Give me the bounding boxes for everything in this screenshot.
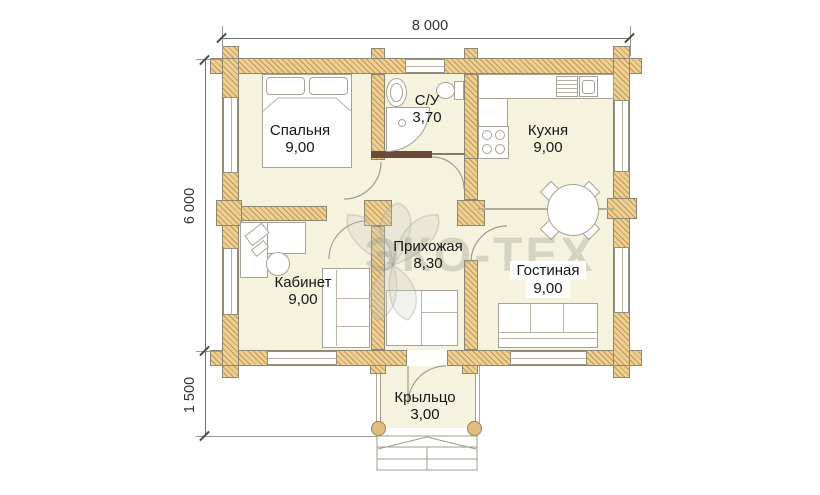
room-name: Спальня	[240, 122, 360, 139]
kitchen-sink-drainboard	[556, 76, 578, 97]
pillow	[266, 77, 305, 95]
room-name: Гостиная	[510, 261, 587, 280]
room-label-porch: Крыльцо 3,00	[365, 389, 485, 423]
corner-stub	[613, 46, 630, 59]
porch-steps	[377, 436, 477, 470]
room-name: С/У	[385, 92, 469, 109]
room-area: 8,30	[368, 255, 488, 272]
dimension-height-main: 6 000	[182, 171, 198, 241]
wall-cross-joint	[216, 200, 242, 226]
wall-cross-joint	[364, 200, 392, 226]
office-sofa-line	[337, 326, 369, 327]
wall-stub	[462, 365, 478, 374]
room-name: Кухня	[488, 122, 608, 139]
bathroom-partition	[371, 151, 432, 158]
living-sofa-line	[530, 304, 531, 332]
window-bathroom-top	[405, 59, 445, 73]
window-office-bottom	[267, 351, 337, 365]
porch-post	[371, 421, 386, 436]
extension-line	[630, 26, 631, 56]
room-label-bathroom: С/У 3,70	[385, 92, 469, 126]
room-area: 9,00	[240, 139, 360, 156]
room-label-office: Кабинет 9,00	[243, 274, 363, 308]
room-area: 9,00	[243, 291, 363, 308]
corner-stub	[210, 58, 223, 74]
room-label-kitchen: Кухня 9,00	[488, 122, 608, 156]
dimension-height-porch: 1 500	[182, 360, 198, 430]
wall-stub	[464, 48, 478, 59]
corner-stub	[629, 58, 642, 74]
living-sofa	[498, 303, 598, 348]
corner-stub	[222, 46, 239, 59]
living-sofa-line	[499, 338, 597, 339]
room-name: Кабинет	[243, 274, 363, 291]
wall-bedroom-bathroom	[371, 74, 385, 160]
floor-plan-canvas: ЭКО-ТЕХ Спальня 9,00 С/У 3,70 Кухня 9,00…	[0, 0, 820, 495]
window-kitchen-right	[614, 100, 629, 172]
room-name: Прихожая	[368, 238, 488, 255]
room-area: 9,00	[526, 279, 569, 298]
wall-cross-joint	[457, 200, 485, 226]
living-sofa-line	[563, 304, 564, 332]
living-sofa-line	[499, 332, 597, 333]
wall-hallway-kitchen	[464, 158, 478, 200]
corner-stub	[210, 350, 223, 366]
room-area: 3,00	[365, 406, 485, 423]
corner-stub	[222, 365, 239, 378]
window-living-bottom	[510, 351, 587, 365]
extension-line	[196, 351, 222, 352]
extension-line	[222, 26, 223, 56]
extension-line	[196, 59, 222, 60]
extension-line	[196, 436, 377, 437]
corner-stub	[613, 365, 630, 378]
window-bedroom-left	[223, 97, 238, 173]
corner-stub	[629, 350, 642, 366]
kitchen-sink-basin-inner	[582, 80, 595, 94]
room-area: 9,00	[488, 139, 608, 156]
wall-stub	[370, 365, 386, 374]
room-area: 3,70	[385, 109, 469, 126]
dimension-line-left	[205, 60, 206, 437]
porch-post	[467, 421, 482, 436]
wall-bedroom-office	[238, 206, 327, 221]
dimension-line-top	[222, 38, 630, 39]
wall-stub	[371, 48, 385, 59]
pillow	[309, 77, 348, 95]
room-label-living: Гостиная 9,00	[488, 261, 608, 298]
bathroom-door-leaf	[432, 153, 464, 155]
wardrobe-shelf-line	[422, 312, 457, 313]
window-office-left	[223, 248, 238, 315]
room-name: Крыльцо	[365, 389, 485, 406]
wardrobe-divider	[421, 291, 422, 345]
dimension-width-total: 8 000	[380, 18, 480, 34]
room-label-hallway: Прихожая 8,30	[368, 238, 488, 272]
room-label-bedroom: Спальня 9,00	[240, 122, 360, 156]
wardrobe	[386, 290, 458, 346]
desk-chair	[266, 252, 290, 276]
